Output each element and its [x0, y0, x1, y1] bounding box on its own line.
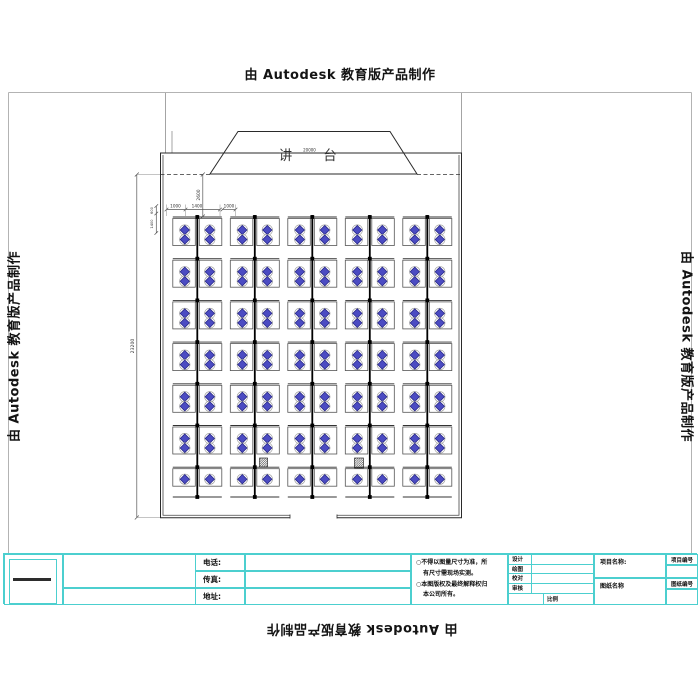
podium-label-right: 台	[323, 148, 337, 164]
dim-1000-left: 1000	[170, 204, 181, 209]
workstation-column	[345, 215, 394, 499]
phone-value	[245, 554, 411, 571]
sheet-no-value	[666, 589, 698, 605]
note-line: 本公司所有。	[416, 590, 507, 601]
workstation-column	[230, 215, 279, 499]
workstation-column	[173, 215, 222, 499]
floor-box-hatch	[260, 458, 268, 467]
notes-cell: ○不得以图量尺寸为准，所 有尺寸需现场实测。 ○本图版权及最终解释权归 本公司所…	[411, 554, 508, 605]
phone-label: 电话:	[195, 554, 245, 571]
sheet-name-cell: 图纸名称	[594, 578, 666, 605]
note-line: 有尺寸需现场实测。	[416, 569, 507, 580]
address-label: 地址:	[195, 588, 245, 605]
dim-1400-edge: 1400	[150, 219, 154, 229]
watermark-bottom: 由 Autodesk 教育版产品制作	[22, 621, 700, 640]
watermark-right: 由 Autodesk 教育版产品制作	[679, 247, 698, 447]
dim-1400: 1400	[192, 204, 203, 209]
dim-23200: 23200	[130, 339, 136, 354]
floor-box-hatch	[355, 458, 364, 468]
title-block: 电话: 传真: 地址: ○不得以图量尺寸为准，所 有尺寸需现场实测。 ○本图版权…	[3, 553, 697, 604]
dim-600: 600	[150, 206, 154, 214]
dim-20000: 20000	[303, 148, 316, 153]
note-line: ○不得以图量尺寸为准，所	[416, 558, 507, 569]
fax-value	[245, 571, 411, 588]
project-name-cell: 项目名称:	[594, 554, 666, 578]
scale-left-cell	[508, 593, 544, 606]
company-logo-box	[9, 559, 57, 604]
project-no-value	[666, 565, 698, 578]
fax-label: 传真:	[195, 571, 245, 588]
plot-sheet: 由 Autodesk 教育版产品制作 由 Autodesk 教育版产品制作 由 …	[0, 0, 700, 700]
note-line: ○本图版权及最终解释权归	[416, 580, 507, 591]
address-value	[245, 588, 411, 605]
scale-label: 比例	[543, 593, 594, 606]
watermark-left: 由 Autodesk 教育版产品制作	[4, 247, 23, 447]
room-walls	[160, 153, 462, 519]
dim-2600: 2600	[196, 189, 202, 200]
blank-cell-top	[63, 554, 198, 588]
podium-label-left: 讲	[279, 148, 293, 164]
blank-cell-bottom	[63, 588, 198, 605]
dim-1000-mid: 1000	[224, 204, 235, 209]
sheet-no-label: 图纸编号	[666, 578, 698, 589]
project-no-label: 项目编号	[666, 554, 698, 565]
workstation-column	[288, 215, 337, 499]
company-logo-text	[13, 578, 51, 581]
watermark-top: 由 Autodesk 教育版产品制作	[0, 64, 680, 83]
workstation-column	[403, 215, 452, 499]
logo-cell	[4, 554, 63, 605]
workstation-grid	[173, 215, 452, 499]
